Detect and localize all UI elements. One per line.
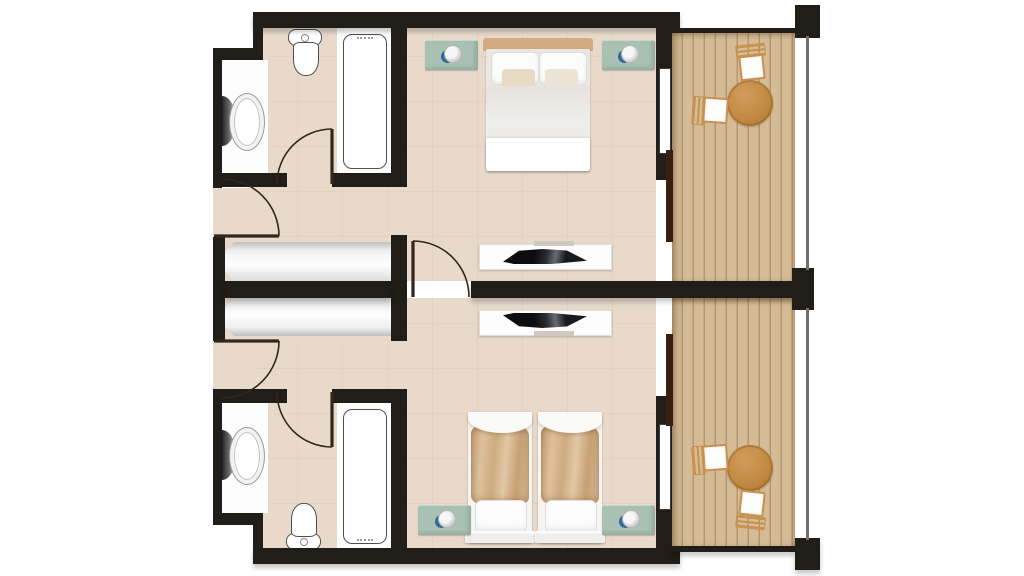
railing-post-top-right xyxy=(795,5,820,38)
double-bed-duvet xyxy=(486,86,590,140)
wall-bottom xyxy=(253,548,680,564)
lamp-shade xyxy=(444,45,462,63)
wardrobe-room-b xyxy=(225,298,391,336)
washbasin-room-b xyxy=(229,427,265,485)
twin-bed-right-pillow xyxy=(545,500,597,533)
twin-bed-left-blanket xyxy=(471,426,529,504)
chair-seat xyxy=(738,54,765,81)
bathtub-room-b xyxy=(343,409,387,544)
twin-bed-right-headboard xyxy=(535,531,605,543)
entry-a-floor xyxy=(213,188,253,237)
toilet-bowl-room-a xyxy=(293,42,319,76)
table-lamp-b-right xyxy=(618,509,640,531)
wall-wardrobe-east xyxy=(391,235,407,341)
wall-top xyxy=(253,12,680,28)
twin-bed-left-headboard xyxy=(465,531,535,543)
wall-bathroom-a-south-1 xyxy=(213,173,287,187)
chair-seat xyxy=(738,490,765,517)
balcony-b-chair-left xyxy=(691,442,731,478)
balcony-a-table xyxy=(727,80,773,126)
wall-tub-bay-b-east xyxy=(391,389,407,564)
table-lamp-a-left xyxy=(440,44,462,66)
sliding-glass-door-b xyxy=(666,334,673,426)
chair-seat xyxy=(702,444,729,472)
balcony-a-deck xyxy=(672,33,795,281)
twin-bed-left xyxy=(468,412,532,543)
balcony-b-chair-lower xyxy=(734,488,771,529)
railing-post-bottom-right xyxy=(795,538,820,570)
balcony-a-chair-left xyxy=(691,94,731,130)
sliding-door-fixed-panel-b xyxy=(659,424,671,510)
balcony-b-edge-bottom xyxy=(672,546,795,552)
balcony-b-railing xyxy=(806,308,809,540)
washbasin-room-a xyxy=(229,93,265,151)
twin-bed-right xyxy=(538,412,602,543)
balcony-a-chair-upper xyxy=(734,42,771,83)
wall-bathroom-b-north-1 xyxy=(213,389,287,403)
balcony-a-railing xyxy=(806,36,809,270)
railing-post-mid-right xyxy=(792,268,814,310)
bathtub-room-a xyxy=(343,34,387,169)
double-bed-duvet-fold xyxy=(486,138,590,171)
lamp-shade xyxy=(438,510,456,528)
table-lamp-b-left xyxy=(434,509,456,531)
twin-bed-right-blanket xyxy=(541,426,599,504)
lamp-shade xyxy=(621,45,639,63)
wall-tub-bay-a-east xyxy=(391,12,407,187)
toilet-bowl-room-b xyxy=(291,503,317,537)
wall-left-entry xyxy=(213,237,225,341)
wardrobe-room-a xyxy=(225,242,391,281)
sliding-glass-door-a xyxy=(666,150,673,242)
twin-bed-left-pillow xyxy=(475,500,527,533)
wall-left-bathroom-a xyxy=(213,50,222,188)
entry-b-floor xyxy=(213,341,253,390)
sliding-door-fixed-panel-a xyxy=(659,68,671,154)
balcony-b-table xyxy=(727,445,773,491)
lamp-shade xyxy=(622,510,640,528)
table-lamp-a-right xyxy=(617,44,639,66)
wall-divider-west xyxy=(225,281,391,298)
balcony-a-edge-top xyxy=(672,28,795,33)
wall-left-bathroom-b xyxy=(213,390,222,523)
chair-seat xyxy=(702,96,729,124)
console-ledge-room-a xyxy=(534,241,574,246)
console-ledge-room-b xyxy=(534,331,574,336)
floor-plan xyxy=(0,0,1024,576)
wall-divider-east xyxy=(471,281,795,298)
balcony-b-deck xyxy=(672,298,795,546)
